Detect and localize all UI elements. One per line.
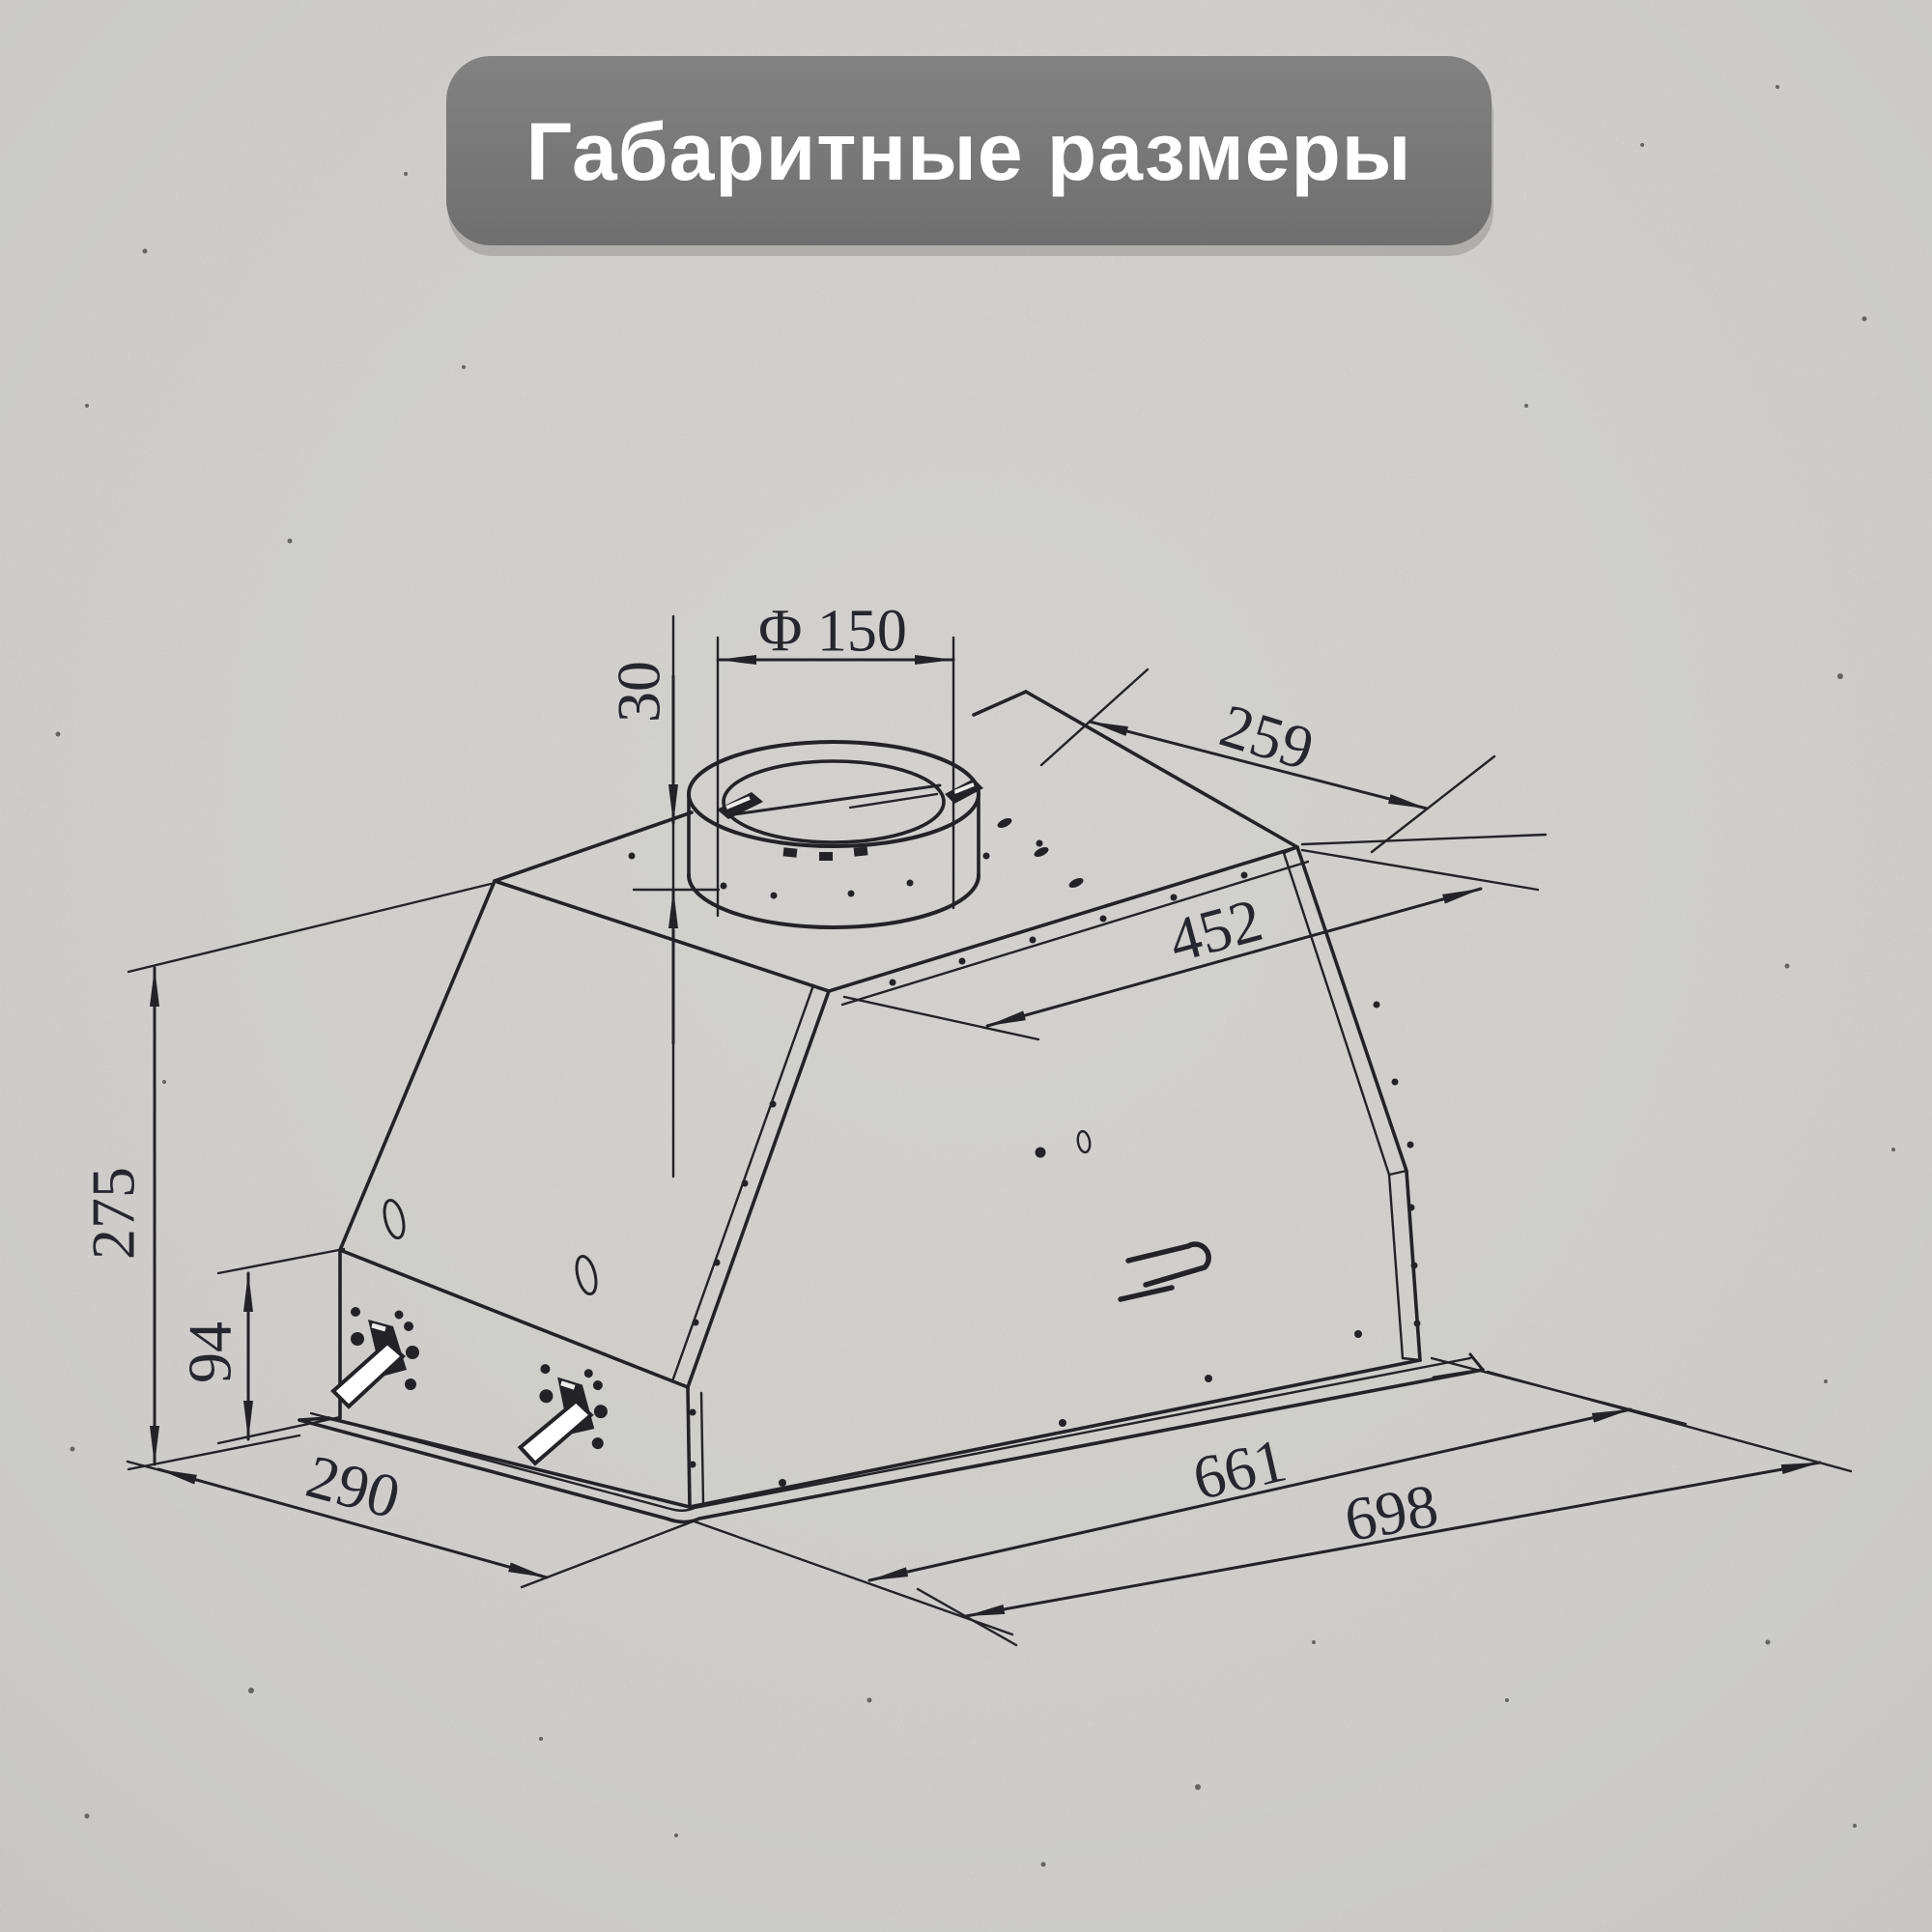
screenshot-root: Габаритные размеры [0,0,1932,1932]
title-banner: Габаритные размеры [446,56,1493,256]
page-title: Габаритные размеры [526,106,1411,197]
dim-label-overall-height: 275 [78,1167,147,1260]
face-hole [1036,1148,1046,1158]
dim-label-collar-height: 30 [604,661,672,723]
dim-label-band-height: 94 [175,1321,243,1383]
dimension-drawing-canvas: Габаритные размеры [0,0,1932,1932]
dim-label-duct-diameter: Φ 150 [758,599,907,665]
